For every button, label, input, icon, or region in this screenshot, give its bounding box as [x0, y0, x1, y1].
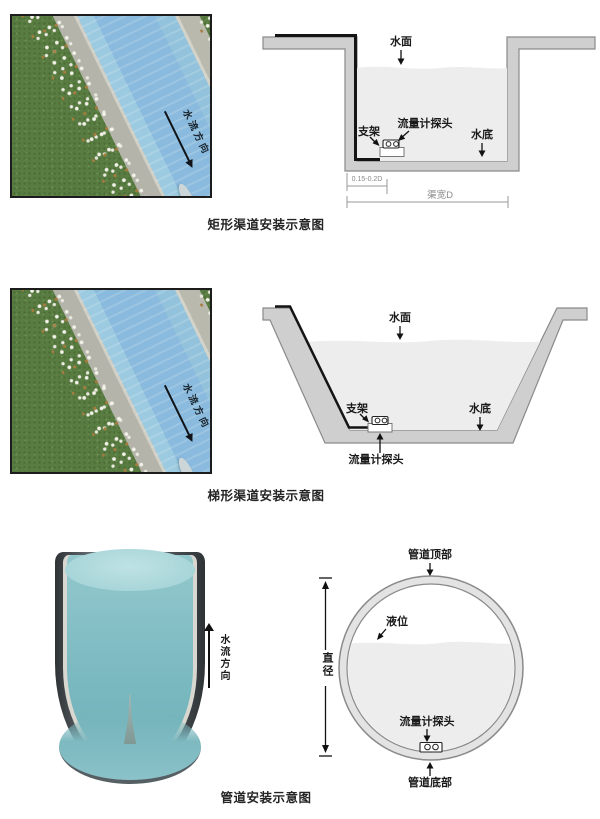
arrowhead-icon [427, 762, 434, 769]
label-diameter: 直径 [319, 652, 335, 678]
arrowhead-icon [322, 581, 329, 589]
pipe-water-surface [65, 549, 195, 591]
label-probe: 流量计探头 [349, 452, 404, 466]
probe-transducer [425, 744, 431, 750]
label-bracket: 支架 [345, 401, 368, 415]
arrowhead-icon [397, 334, 404, 341]
pipe-cross-section-diagram: 管道顶部 液位 流量计探头 管道底部 [300, 540, 560, 808]
caption-trapezoidal: 梯形渠道安装示意图 [160, 485, 372, 504]
probe-transducer [382, 418, 387, 423]
label-bracket: 支架 [357, 124, 380, 138]
probe-transducer [394, 142, 399, 147]
label-water-bottom: 水底 [469, 401, 491, 415]
pipe-3d-illustration [55, 552, 205, 778]
caption-rectangular: 矩形渠道安装示意图 [160, 214, 372, 233]
channel-water-band: 水流方向 [10, 14, 212, 198]
label-probe: 流量计探头 [400, 714, 455, 728]
arrowhead-icon [204, 623, 214, 631]
label-water-bottom: 水底 [471, 127, 493, 141]
probe-transducer [375, 418, 380, 423]
probe-transducer [386, 142, 391, 147]
caption-pipe: 管道安装示意图 [160, 787, 372, 806]
water-streaks [21, 14, 212, 198]
label-water-surface: 水面 [389, 310, 411, 324]
trapezoidal-channel-diagram: 水面 支架 水底 流量计探头 [250, 295, 597, 475]
label-probe: 流量计探头 [398, 116, 453, 130]
arrowhead-icon [427, 570, 434, 577]
channel-photo-trapezoidal: 水流方向 [10, 288, 212, 474]
probe-transducer [433, 744, 439, 750]
page: 水流方向 水面 流量计探头 支架 水底 0.15-0.2D [0, 0, 600, 819]
label-pipe-top: 管道顶部 [408, 547, 452, 561]
rectangular-channel-diagram: 水面 流量计探头 支架 水底 0.15-0.2D 渠宽D [250, 24, 597, 216]
water-streaks [21, 288, 212, 474]
channel-water-band: 水流方向 [10, 288, 212, 474]
dimension-width-text: 渠宽D [427, 189, 453, 201]
water-fill [357, 67, 507, 161]
pipe-flow-arrow [208, 630, 210, 688]
label-pipe-bottom: 管道底部 [408, 775, 452, 789]
pipe-flow-direction-label: 水流方向 [216, 634, 231, 682]
arrowhead-icon [322, 745, 329, 753]
dimension-offset-text: 0.15-0.2D [352, 176, 383, 183]
label-level: 液位 [386, 614, 408, 628]
probe-bracket [380, 148, 404, 157]
channel-photo-rectangular: 水流方向 [10, 14, 212, 198]
arrowhead-icon [398, 59, 405, 66]
label-water-surface: 水面 [390, 34, 412, 48]
